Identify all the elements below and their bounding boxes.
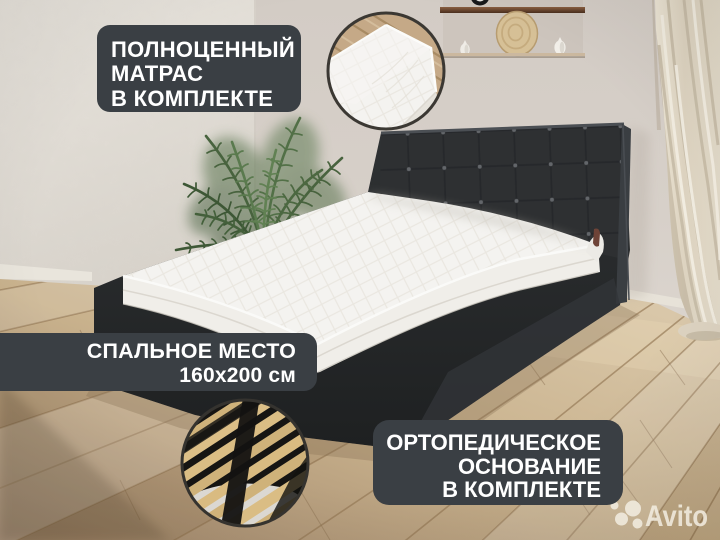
svg-text:Avito: Avito bbox=[645, 500, 708, 533]
